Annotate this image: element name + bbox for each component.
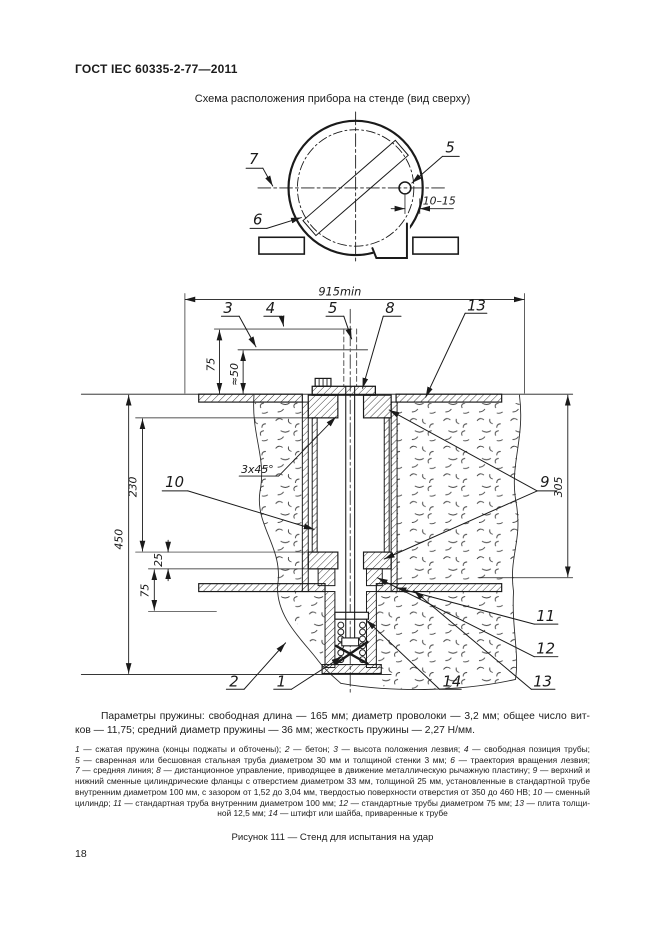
legend-line: внутренним диаметром 100 мм, с зазором о… xyxy=(75,787,590,798)
upper-flange-left xyxy=(308,395,338,418)
main-view: 915min 75 ≈50 3 4 5 8 13 xyxy=(81,285,572,693)
dim-blade-height2-label: ≈50 xyxy=(228,363,241,386)
callout-6-label: 6 xyxy=(253,211,262,228)
dim-305-label: 305 xyxy=(552,477,565,498)
concrete-right xyxy=(397,403,521,584)
technical-drawing: 7 5 6 10–15 xyxy=(75,108,580,708)
inner-cylinder-wall-left xyxy=(312,418,317,552)
outer-tube-wall-left xyxy=(302,402,308,591)
top-plate-right xyxy=(396,394,502,402)
legend-line: нижний сменные цилиндрические фланцы с о… xyxy=(75,776,590,787)
legend-line: 5 — сваренная или бесшовная стальная тру… xyxy=(75,755,590,766)
dim-blade-height-label: 75 xyxy=(205,358,218,372)
callout-14-label: 14 xyxy=(442,673,461,690)
spring-housing-wall-left xyxy=(325,592,335,668)
inner-cylinder-wall-right xyxy=(384,418,389,552)
callout-13-bottom-label: 13 xyxy=(533,673,552,690)
callout-9-label: 9 xyxy=(540,474,549,491)
notch-mask xyxy=(373,224,410,256)
dim-75-bottom-label: 75 xyxy=(138,584,151,598)
concrete-bottom-left xyxy=(279,592,325,659)
callout-1-label: 1 xyxy=(277,673,286,690)
spring-parameters-note: Параметры пружины: свободная длина — 165… xyxy=(75,710,590,738)
figure-legend: 1 — сжатая пружина (концы поджаты и обто… xyxy=(75,744,590,819)
dim-230-label: 230 xyxy=(127,477,140,498)
chamfer-note-label: 3x45° xyxy=(241,463,274,476)
concrete-left xyxy=(254,402,302,584)
callout-2-label: 2 xyxy=(229,673,238,690)
callout-3-label: 3 xyxy=(223,300,232,317)
rod-end-cap xyxy=(342,638,359,646)
callout-10-label: 10 xyxy=(165,474,184,491)
spring-housing-bottom xyxy=(322,665,381,674)
dim-gap-label: 10–15 xyxy=(423,195,456,208)
callout-7-label: 7 xyxy=(249,151,259,168)
top-plate-left xyxy=(199,394,303,402)
bottom-plate-right xyxy=(376,584,501,592)
callout-13-top-label: 13 xyxy=(467,297,486,314)
legend-line: цилиндр; 11 — стандартная труба внутренн… xyxy=(75,798,590,809)
callout-4-label: 4 xyxy=(266,300,275,317)
spring-note-line: ков — 11,75; средний диаметр пружины — 3… xyxy=(75,724,590,738)
lower-flange-left xyxy=(308,552,338,569)
top-view-title: Схема расположения прибора на стенде (ви… xyxy=(75,93,590,105)
spring-housing-wall-right xyxy=(366,592,376,668)
support-block-right xyxy=(413,237,458,254)
upper-flange-right xyxy=(364,395,392,418)
callout-12-label: 12 xyxy=(536,641,555,658)
standard-designation: ГОСТ IEC 60335-2-77—2011 xyxy=(75,62,238,76)
washer-pin xyxy=(335,612,369,619)
lever-plate xyxy=(312,386,375,395)
dim-450-label: 450 xyxy=(113,529,126,550)
page-number: 18 xyxy=(75,848,87,860)
top-view: 7 5 6 10–15 xyxy=(246,112,459,264)
legend-line: 1 — сжатая пружина (концы поджаты и обто… xyxy=(75,744,590,755)
callout-11-label: 11 xyxy=(536,608,555,625)
figure-drawing: 7 5 6 10–15 xyxy=(75,108,580,708)
dim-25-label: 25 xyxy=(152,553,165,567)
dim-width-label: 915min xyxy=(318,285,361,299)
callout-5-top-label: 5 xyxy=(445,139,454,156)
spring-note-line: Параметры пружины: свободная длина — 165… xyxy=(75,710,590,724)
callout-8-label: 8 xyxy=(385,300,394,317)
legend-line: ной 12,5 мм; 14 — штифт или шайба, прива… xyxy=(75,808,590,819)
outer-tube-wall-right xyxy=(391,402,397,591)
bottom-plate-left xyxy=(199,584,325,592)
legend-line: 7 — средняя линия; 8 — дистанционное упр… xyxy=(75,765,590,776)
support-block-left xyxy=(259,237,304,254)
figure-caption: Рисунок 111 — Стенд для испытания на уда… xyxy=(75,832,590,843)
document-page: ГОСТ IEC 60335-2-77—2011 Схема расположе… xyxy=(0,0,661,936)
lower-flange-right xyxy=(364,552,392,569)
callout-5-label: 5 xyxy=(328,300,337,317)
bolt-head xyxy=(315,378,331,386)
